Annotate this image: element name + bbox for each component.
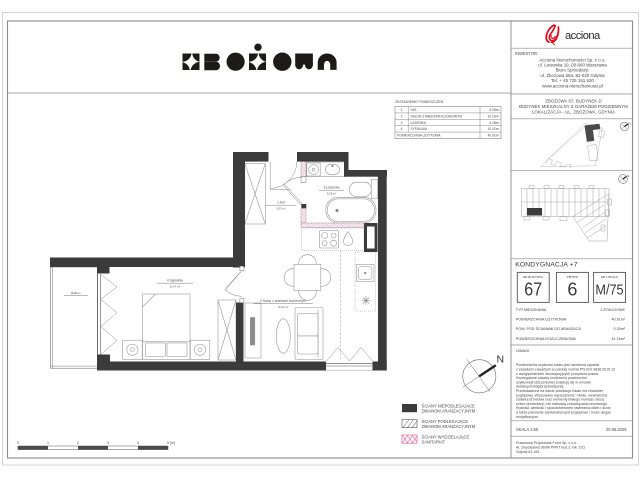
svg-text:INWESTOR:: INWESTOR: — [515, 51, 538, 56]
svg-text:5 [m]: 5 [m] — [167, 441, 175, 445]
svg-text:10.47m²: 10.47m² — [488, 127, 500, 131]
svg-text:N: N — [629, 122, 631, 126]
svg-text:6,18 m²: 6,18 m² — [327, 192, 336, 196]
svg-text:SALON Z ANEKSEM KUCHENNYM: SALON Z ANEKSEM KUCHENNYM — [411, 114, 463, 118]
svg-text:acciona: acciona — [565, 30, 601, 42]
svg-text:TYP MIESZKANIA: TYP MIESZKANIA — [516, 308, 547, 312]
svg-text:5,03 m²: 5,03 m² — [276, 207, 285, 211]
svg-text:2: 2 — [401, 114, 403, 118]
svg-text:1: 1 — [47, 441, 49, 445]
svg-text:ŁAZIENKA: ŁAZIENKA — [411, 121, 427, 125]
svg-text:67: 67 — [524, 280, 542, 300]
svg-text:N: N — [627, 174, 629, 178]
svg-text:SYPIALNIA: SYPIALNIA — [411, 127, 428, 131]
svg-text:19,23 m²: 19,23 m² — [278, 305, 289, 309]
svg-text:ZBOŻOWA 67, BUDYNEK D: ZBOŻOWA 67, BUDYNEK D — [545, 99, 601, 104]
svg-text:0.25m²: 0.25m² — [614, 327, 626, 331]
svg-text:40.91m²: 40.91m² — [488, 134, 500, 138]
svg-text:M/75: M/75 — [595, 282, 623, 299]
svg-text:6: 6 — [567, 280, 577, 300]
svg-text:5.03m²: 5.03m² — [489, 108, 499, 112]
svg-text:POWIERZCHNIA UŻYTKOWA: POWIERZCHNIA UŻYTKOWA — [516, 317, 567, 322]
svg-text:20.05.2025: 20.05.2025 — [606, 427, 627, 432]
svg-text:6.18m²: 6.18m² — [489, 121, 499, 125]
svg-text:Gdynia 81-451: Gdynia 81-451 — [516, 450, 540, 454]
svg-text:41.16m²: 41.16m² — [611, 337, 625, 341]
svg-text:10,47 m²: 10,47 m² — [170, 285, 181, 289]
svg-text:19.23m²: 19.23m² — [488, 114, 500, 118]
svg-text:4: 4 — [137, 441, 139, 445]
svg-text:NR LOKALU: NR LOKALU — [601, 275, 619, 279]
svg-text:3.Łazienka: 3.Łazienka — [324, 186, 340, 190]
svg-text:3: 3 — [401, 121, 403, 125]
svg-text:POW. POD ŚCIANAMI DO ARANŻACJI: POW. POD ŚCIANAMI DO ARANŻACJI — [516, 326, 581, 331]
svg-text:www.acciona-nieruchomosci.pl: www.acciona-nieruchomosci.pl — [542, 83, 603, 88]
svg-text:0: 0 — [17, 441, 19, 445]
svg-text:ZMIANOM ARANŻACYJNYM: ZMIANOM ARANŻACYJNYM — [422, 409, 476, 414]
svg-text:POWIERZCHNIA ROZLICZENIOWA: POWIERZCHNIA ROZLICZENIOWA — [516, 337, 577, 341]
svg-text:3: 3 — [107, 441, 109, 445]
svg-text:4.Sypialnia: 4.Sypialnia — [167, 279, 183, 283]
svg-text:KONDYGNACJA +7: KONDYGNACJA +7 — [515, 261, 578, 268]
svg-text:40.91m²: 40.91m² — [611, 318, 625, 322]
svg-text:Balkon: Balkon — [71, 291, 81, 295]
svg-text:UWAGI: UWAGI — [516, 348, 529, 353]
svg-text:LOKALIZACJA - UL. ZBOŻOWA, GDY: LOKALIZACJA - UL. ZBOŻOWA, GDYNIA — [532, 110, 615, 115]
svg-text:HOL: HOL — [411, 108, 418, 112]
svg-text:POWIERZCHNIA UŻYTKOWA: POWIERZCHNIA UŻYTKOWA — [397, 133, 441, 138]
svg-text:BUDYNEK MIESZKALNY Z GARAŻEM: BUDYNEK MIESZKALNY Z GARAŻEM PODZIEMNYM — [519, 104, 628, 109]
svg-text:2.Salon z aneksem kuchennym: 2.Salon z aneksem kuchennym — [260, 299, 306, 303]
svg-text:Al. Zwycięstwa 96/98 PPNT bud.: Al. Zwycięstwa 96/98 PPNT bud.2, lok. D1… — [516, 445, 585, 449]
svg-text:2: 2 — [77, 441, 79, 445]
svg-text:ZESTAWIENIE POMIESZCZEŃ: ZESTAWIENIE POMIESZCZEŃ — [395, 100, 444, 104]
svg-text:modyfikacjom.: modyfikacjom. — [516, 415, 539, 419]
svg-text:SKALA 1:50: SKALA 1:50 — [516, 427, 539, 432]
svg-text:1: 1 — [401, 108, 403, 112]
svg-text:ZMIANOM ARANŻACYJNYM: ZMIANOM ARANŻACYJNYM — [422, 424, 476, 429]
svg-text:SANITARIAT: SANITARIAT — [422, 439, 446, 444]
svg-text:1.Hol: 1.Hol — [277, 201, 285, 205]
svg-text:4: 4 — [401, 127, 403, 131]
svg-text:N: N — [497, 354, 505, 366]
svg-text:Pracownia Projektowa Front Sp.: Pracownia Projektowa Front Sp. z o.o. — [516, 441, 577, 445]
svg-text:2-POKOJOWE: 2-POKOJOWE — [600, 308, 625, 312]
